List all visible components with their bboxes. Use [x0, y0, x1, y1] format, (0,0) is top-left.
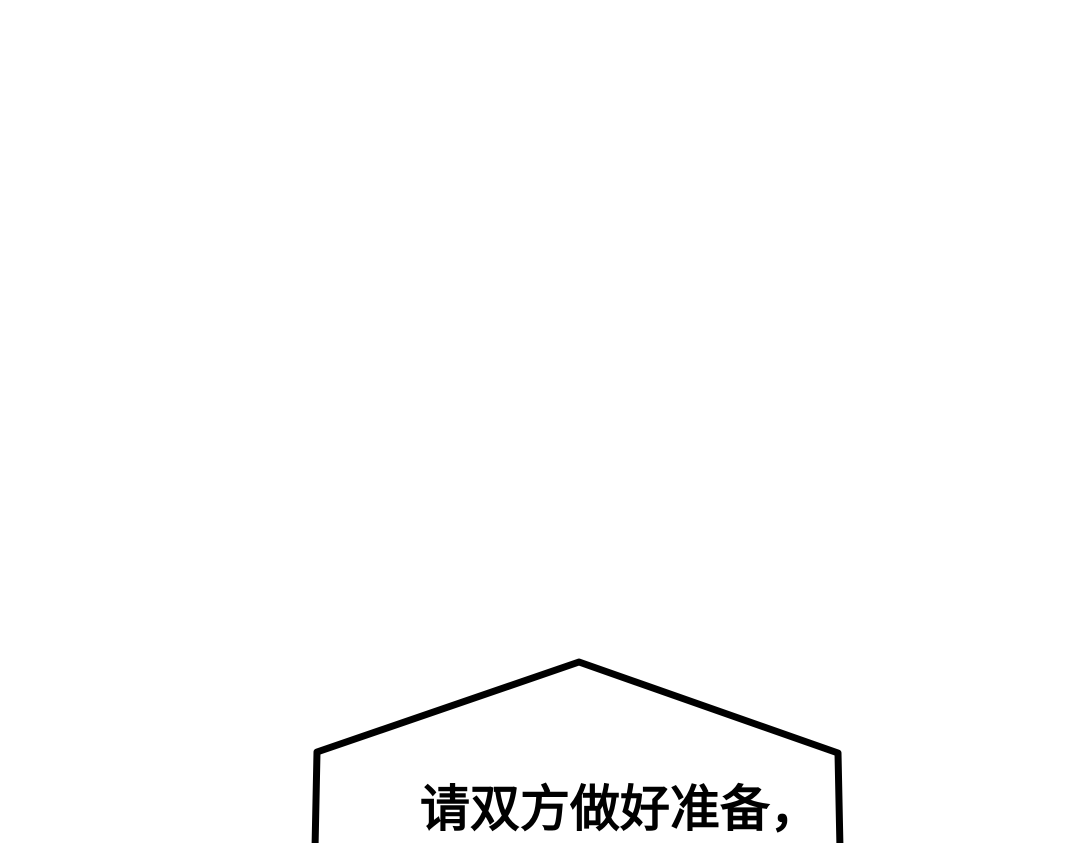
dialogue-text: 请双方做好准备， — [420, 782, 820, 836]
comic-panel: 请双方做好准备， — [0, 0, 1080, 843]
speech-bubble — [0, 0, 1080, 843]
